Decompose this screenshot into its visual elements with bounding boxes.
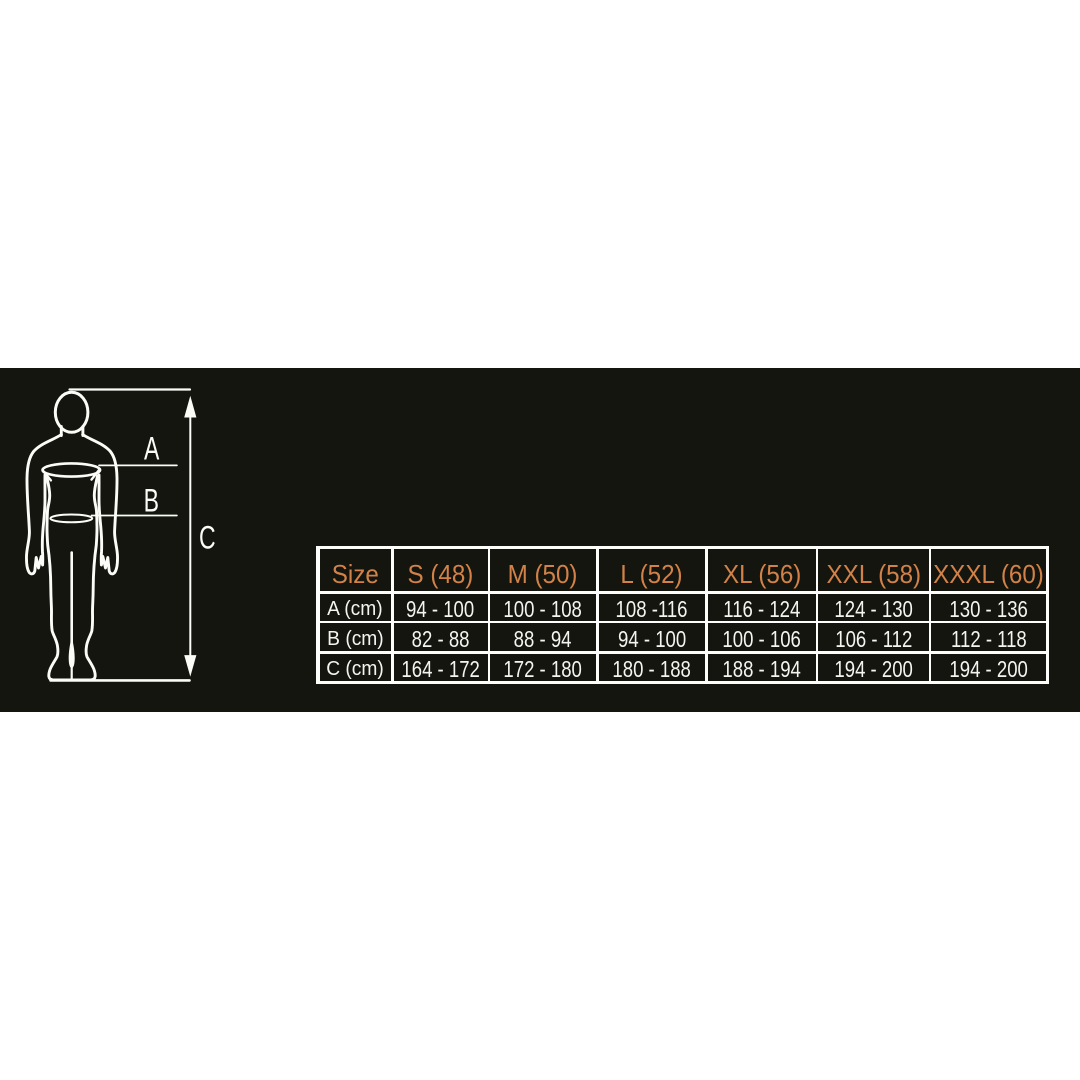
svg-text:C: C	[199, 520, 216, 556]
svg-text:B: B	[144, 483, 159, 519]
svg-text:A: A	[144, 431, 160, 467]
